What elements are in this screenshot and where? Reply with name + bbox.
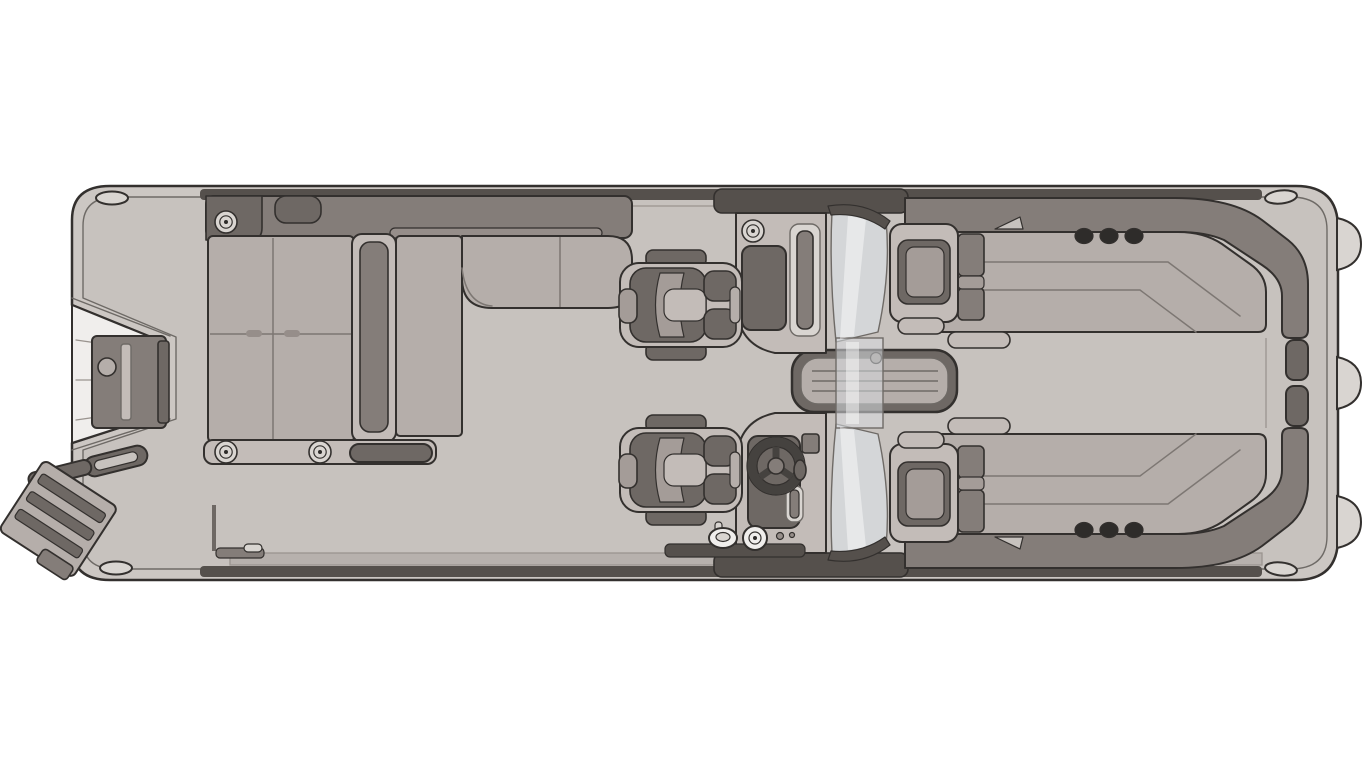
helm-display — [802, 434, 819, 453]
aft-chaise-backrest — [352, 234, 396, 442]
bow-lounge-starboard — [890, 418, 1308, 568]
captain-chair-port — [619, 250, 742, 360]
gate-latch — [98, 358, 116, 376]
pontoon-nose — [1337, 218, 1361, 270]
walkthrough-windshield — [828, 205, 890, 562]
steering-wheel — [747, 437, 806, 495]
small-cleat — [244, 544, 262, 552]
grab-slot — [790, 490, 799, 518]
cleat — [96, 192, 128, 205]
grab-handle — [350, 444, 432, 462]
speaker-icon — [215, 441, 237, 463]
captain-chair-starboard — [619, 415, 742, 525]
speaker-icon — [215, 211, 237, 233]
bow-lounge-port — [890, 198, 1308, 348]
pontoon-nose — [1337, 496, 1361, 548]
speaker-icon — [309, 441, 331, 463]
boat-floor-plan — [0, 0, 1366, 768]
aft-sun-pad — [208, 236, 354, 442]
floor-plan-canvas — [0, 0, 1366, 768]
cleat — [100, 562, 132, 575]
gate-hinge-bar — [121, 344, 131, 420]
pontoon-nose — [1337, 357, 1361, 409]
bow-trim-cap — [1286, 340, 1308, 380]
bow-trim-cap — [1286, 386, 1308, 426]
wheel-knob — [794, 460, 806, 480]
